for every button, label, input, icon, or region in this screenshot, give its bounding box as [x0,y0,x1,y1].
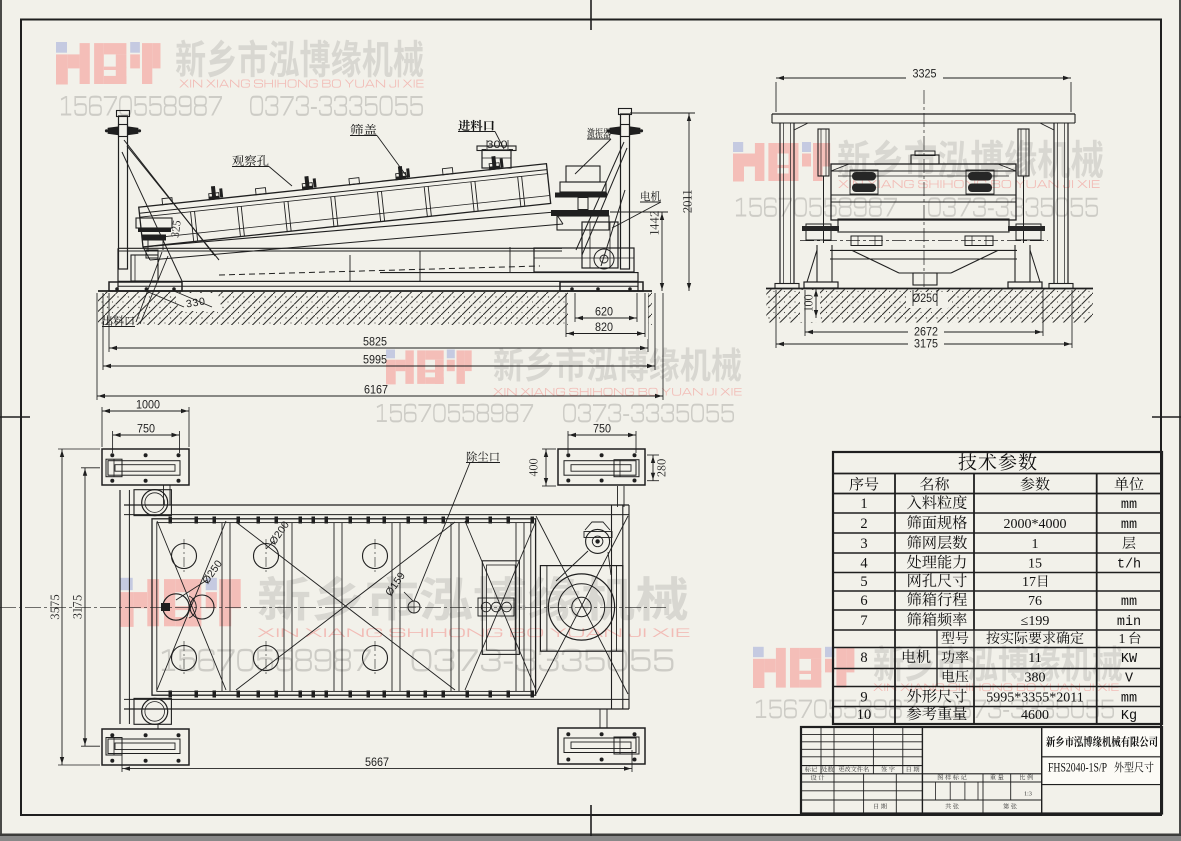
svg-text:7: 7 [860,613,867,629]
svg-text:1000: 1000 [136,400,160,412]
svg-text:17: 17 [1022,575,1036,590]
svg-text:76: 76 [1028,594,1042,609]
svg-text:≤199: ≤199 [1021,614,1050,629]
svg-text:5825: 5825 [363,337,387,349]
svg-text:5: 5 [860,574,867,590]
svg-text:5995: 5995 [363,355,387,367]
svg-text:KW: KW [1121,652,1138,667]
svg-text:3175: 3175 [914,339,938,351]
svg-text:2672: 2672 [914,327,938,339]
svg-text:15: 15 [1028,557,1042,572]
svg-text:11: 11 [1028,651,1041,666]
svg-text:750: 750 [137,424,155,436]
svg-text:6: 6 [860,593,867,609]
svg-text:FHS2040-1S/P: FHS2040-1S/P [1048,761,1107,775]
svg-text:min: min [1117,615,1141,630]
svg-text:1:3: 1:3 [1024,792,1032,798]
svg-text:300: 300 [487,139,508,151]
svg-text:1: 1 [860,496,867,512]
svg-text:6167: 6167 [364,385,388,397]
svg-text:4: 4 [860,556,868,572]
svg-text:820: 820 [595,322,613,334]
svg-text:mm: mm [1121,692,1137,707]
svg-text:2000*4000: 2000*4000 [1004,517,1067,532]
svg-text:10: 10 [857,707,872,723]
svg-text:5995*3355*2011: 5995*3355*2011 [986,691,1083,706]
svg-text:620: 620 [595,307,613,319]
svg-text:1: 1 [1119,632,1126,647]
svg-text:mm: mm [1121,498,1137,513]
svg-text:750: 750 [593,424,611,436]
svg-text:9: 9 [860,690,867,706]
svg-text:Kg: Kg [1121,709,1137,724]
svg-text:mm: mm [1121,518,1137,533]
svg-text:5667: 5667 [365,757,389,769]
svg-text:1: 1 [1032,537,1039,552]
svg-text:t/h: t/h [1117,558,1141,573]
svg-text:4600: 4600 [1021,708,1049,723]
svg-text:8: 8 [860,650,867,666]
svg-text:3325: 3325 [913,69,937,81]
svg-text:Ø250: Ø250 [912,293,938,305]
svg-text:380: 380 [1025,671,1046,686]
svg-text:3: 3 [860,536,867,552]
svg-text:mm: mm [1121,595,1137,610]
svg-text:V: V [1125,672,1134,687]
svg-text:2: 2 [860,516,867,532]
